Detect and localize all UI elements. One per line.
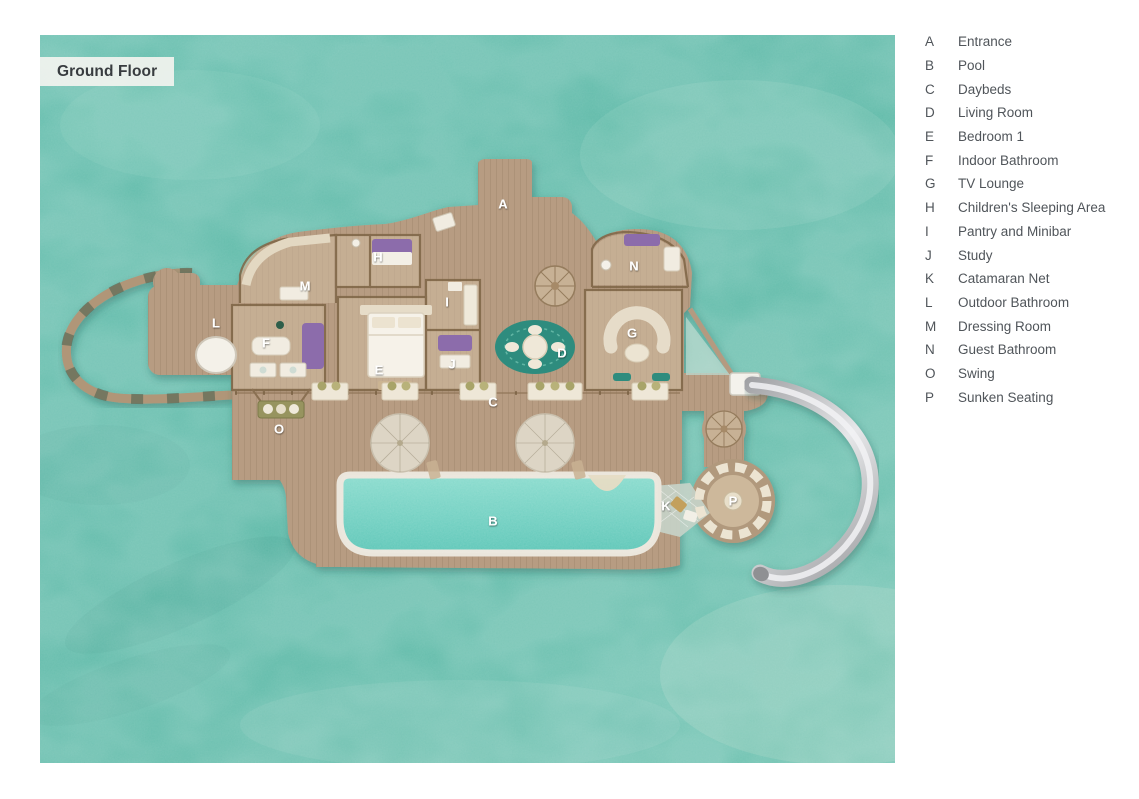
floor-label: Ground Floor [40,57,174,86]
legend-label: Outdoor Bathroom [958,295,1139,310]
legend-row-P: PSunken Seating [925,385,1139,409]
legend-row-G: GTV Lounge [925,172,1139,196]
legend-key: P [925,390,958,405]
legend-key: N [925,342,958,357]
legend-key: M [925,319,958,334]
legend-label: Guest Bathroom [958,342,1139,357]
marker-K: K [661,499,671,514]
page-root: ABCDEFGHIJKLMNOP Ground Floor AEntranceB… [0,0,1139,799]
legend-key: O [925,366,958,381]
legend-row-A: AEntrance [925,30,1139,54]
marker-G: G [627,326,637,341]
marker-P: P [729,494,738,509]
legend-label: Catamaran Net [958,271,1139,286]
marker-J: J [448,357,455,372]
legend-key: J [925,248,958,263]
legend-row-B: BPool [925,54,1139,78]
marker-E: E [375,363,384,378]
legend-row-C: CDaybeds [925,77,1139,101]
marker-N: N [629,259,638,274]
legend-key: C [925,82,958,97]
marker-D: D [557,346,566,361]
legend-label: Sunken Seating [958,390,1139,405]
floorplan-svg: ABCDEFGHIJKLMNOP [40,35,895,763]
legend-key: B [925,58,958,73]
legend-key: G [925,176,958,191]
legend-row-K: KCatamaran Net [925,267,1139,291]
legend-label: Study [958,248,1139,263]
legend-row-L: LOutdoor Bathroom [925,291,1139,315]
legend-row-J: JStudy [925,243,1139,267]
marker-A: A [498,197,508,212]
legend-key: F [925,153,958,168]
marker-I: I [445,295,449,310]
legend-label: TV Lounge [958,176,1139,191]
legend-row-F: FIndoor Bathroom [925,148,1139,172]
legend-label: Swing [958,366,1139,381]
legend-row-O: OSwing [925,362,1139,386]
legend-label: Indoor Bathroom [958,153,1139,168]
marker-H: H [373,250,382,265]
legend-row-I: IPantry and Minibar [925,220,1139,244]
pool [336,471,662,557]
marker-O: O [274,422,284,437]
legend-key: E [925,129,958,144]
legend-key: L [925,295,958,310]
legend-label: Entrance [958,34,1139,49]
marker-C: C [488,395,498,410]
legend-key: A [925,34,958,49]
legend-row-N: NGuest Bathroom [925,338,1139,362]
legend-label: Living Room [958,105,1139,120]
marker-M: M [300,279,311,294]
legend-key: D [925,105,958,120]
legend-row-E: EBedroom 1 [925,125,1139,149]
legend-label: Bedroom 1 [958,129,1139,144]
legend-key: K [925,271,958,286]
legend-label: Dressing Room [958,319,1139,334]
legend-label: Pool [958,58,1139,73]
legend-label: Daybeds [958,82,1139,97]
legend-row-M: MDressing Room [925,314,1139,338]
legend-label: Children's Sleeping Area [958,200,1139,215]
legend-row-H: HChildren's Sleeping Area [925,196,1139,220]
marker-B: B [488,514,497,529]
marker-L: L [212,316,220,331]
bathtub [196,337,236,373]
legend-row-D: DLiving Room [925,101,1139,125]
legend-list: AEntranceBPoolCDaybedsDLiving RoomEBedro… [895,30,1139,409]
floorplan-image: ABCDEFGHIJKLMNOP Ground Floor [40,35,895,763]
marker-F: F [262,336,270,351]
legend-label: Pantry and Minibar [958,224,1139,239]
legend: AEntranceBPoolCDaybedsDLiving RoomEBedro… [895,30,1139,409]
legend-key: H [925,200,958,215]
legend-key: I [925,224,958,239]
